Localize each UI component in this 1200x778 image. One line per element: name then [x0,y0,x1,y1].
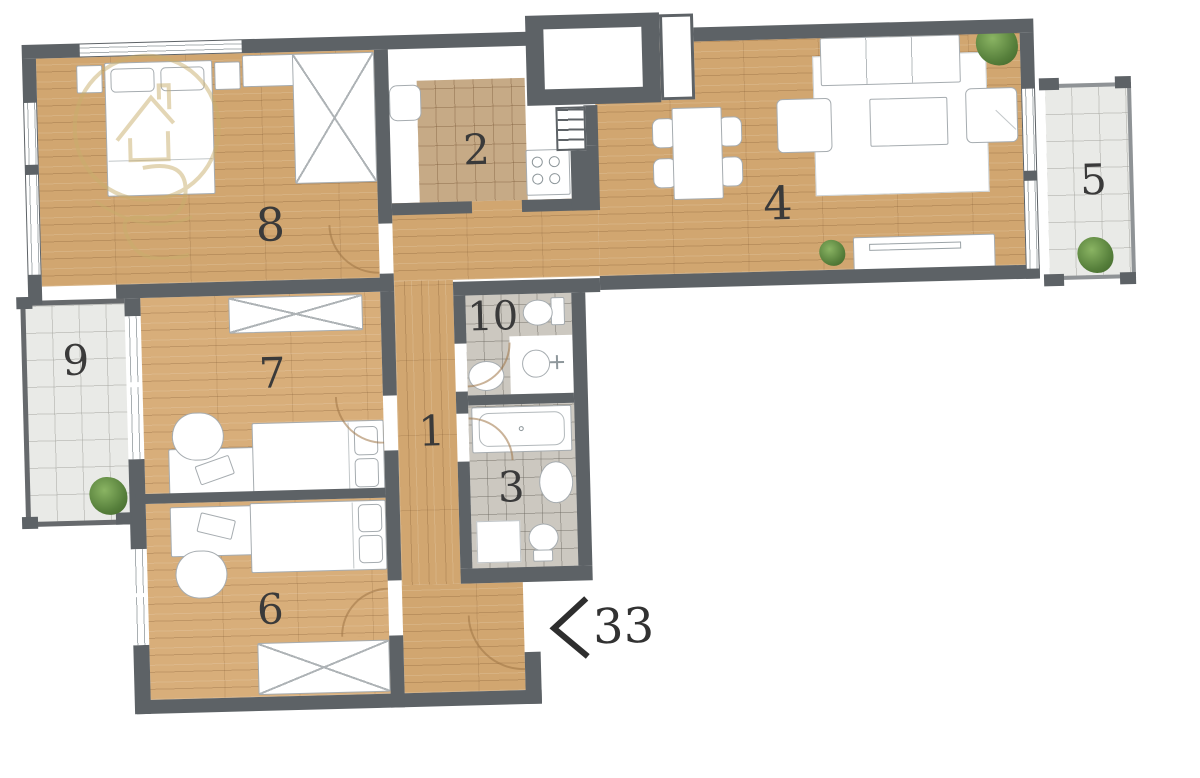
wall-bedrooms-right [380,291,397,395]
balcony-post [1039,78,1059,91]
balcony-post [1044,274,1064,287]
room-label-10: 10 [456,288,529,346]
toilet-tank [533,549,553,562]
entrance-marker: 33 [546,593,655,662]
room-label-3: 3 [481,458,542,516]
desk-chair [175,550,228,599]
wall-bedroom8-right [380,273,394,291]
balcony-post [22,517,38,529]
stove [525,149,570,196]
dining-table [671,107,723,200]
shaft-window [543,27,643,90]
room-label-7: 7 [241,344,302,402]
window [128,387,144,459]
wall-kitchen-bottom [392,201,472,215]
pillow [359,535,384,564]
faucet-cross-icon [556,355,558,369]
balcony-post [1115,76,1131,88]
balcony-post [16,297,32,309]
pillow [354,458,379,488]
wall-bath-bottom [460,565,592,583]
washing-machine [476,520,521,563]
wall-bedrooms-right [389,635,405,707]
armchair [776,98,832,153]
page: { "plan_title": "apartment-floor-plan", … [0,0,1200,778]
coffee-table [869,97,948,147]
watermark-logo-icon [39,37,265,263]
window [24,103,38,165]
room-label-4: 4 [747,175,808,233]
sofa [820,34,961,86]
armchair [965,87,1018,143]
shaft-column [659,13,695,100]
wardrobe [257,640,390,695]
entrance-number: 33 [592,598,655,656]
wardrobe [228,294,363,333]
wall-kitchen-right [570,145,600,211]
room-label-9: 9 [45,331,106,389]
room-label-6: 6 [240,580,301,638]
balcony-post [116,512,132,524]
room-label-1: 1 [401,402,462,460]
wall-entrance-side [525,652,542,704]
vent-ladder [555,106,586,151]
pillow [358,504,383,533]
room-label-5: 5 [1063,150,1124,208]
floor-plan: 1 2 3 4 5 6 7 8 9 10 33 [0,0,1200,778]
entrance-arrow-icon [546,594,592,661]
window [1024,181,1038,269]
balcony-door [1022,89,1036,171]
window [133,597,148,645]
wardrobe [292,52,377,184]
wall-left-mid [124,298,140,316]
balcony-door [126,316,142,382]
room-label-2: 2 [446,120,507,178]
kitchen-sink [389,85,422,122]
window [132,549,147,593]
desk-chair [171,412,224,461]
window [26,175,41,275]
balcony-post [1120,272,1136,284]
